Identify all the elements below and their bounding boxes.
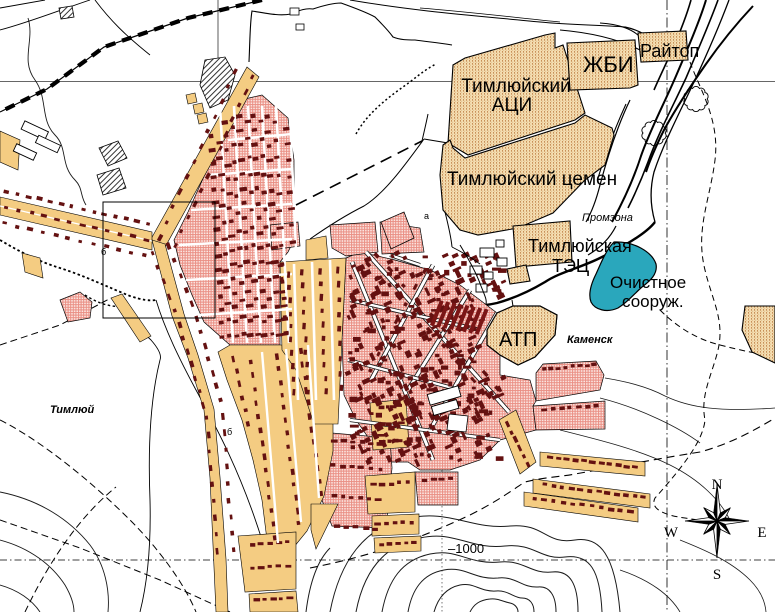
svg-text:Промзона: Промзона (582, 212, 633, 224)
svg-text:б: б (227, 427, 232, 437)
svg-text:ЖБИ: ЖБИ (583, 52, 634, 77)
svg-text:Очистное: Очистное (610, 273, 686, 292)
svg-text:АТП: АТП (499, 329, 537, 351)
svg-text:N: N (712, 477, 723, 493)
svg-text:АЦИ: АЦИ (492, 95, 532, 116)
svg-text:Тимлюйский цемен: Тимлюйский цемен (447, 169, 617, 190)
svg-text:Тимлюй: Тимлюй (50, 404, 95, 416)
svg-text:Тимлюйский: Тимлюйский (461, 76, 570, 97)
svg-text:Тимлюйская: Тимлюйская (528, 236, 632, 256)
svg-text:S: S (713, 567, 721, 583)
svg-text:Райтоп: Райтоп (640, 41, 699, 61)
svg-text:ТЭЦ: ТЭЦ (552, 256, 589, 276)
svg-text:б: б (101, 247, 106, 257)
svg-text:Каменск: Каменск (567, 334, 614, 346)
svg-text:–1000: –1000 (448, 541, 484, 556)
svg-text:а: а (424, 211, 429, 221)
svg-text:E: E (757, 525, 766, 541)
svg-text:W: W (664, 525, 679, 541)
svg-text:сооруж.: сооруж. (622, 292, 684, 311)
